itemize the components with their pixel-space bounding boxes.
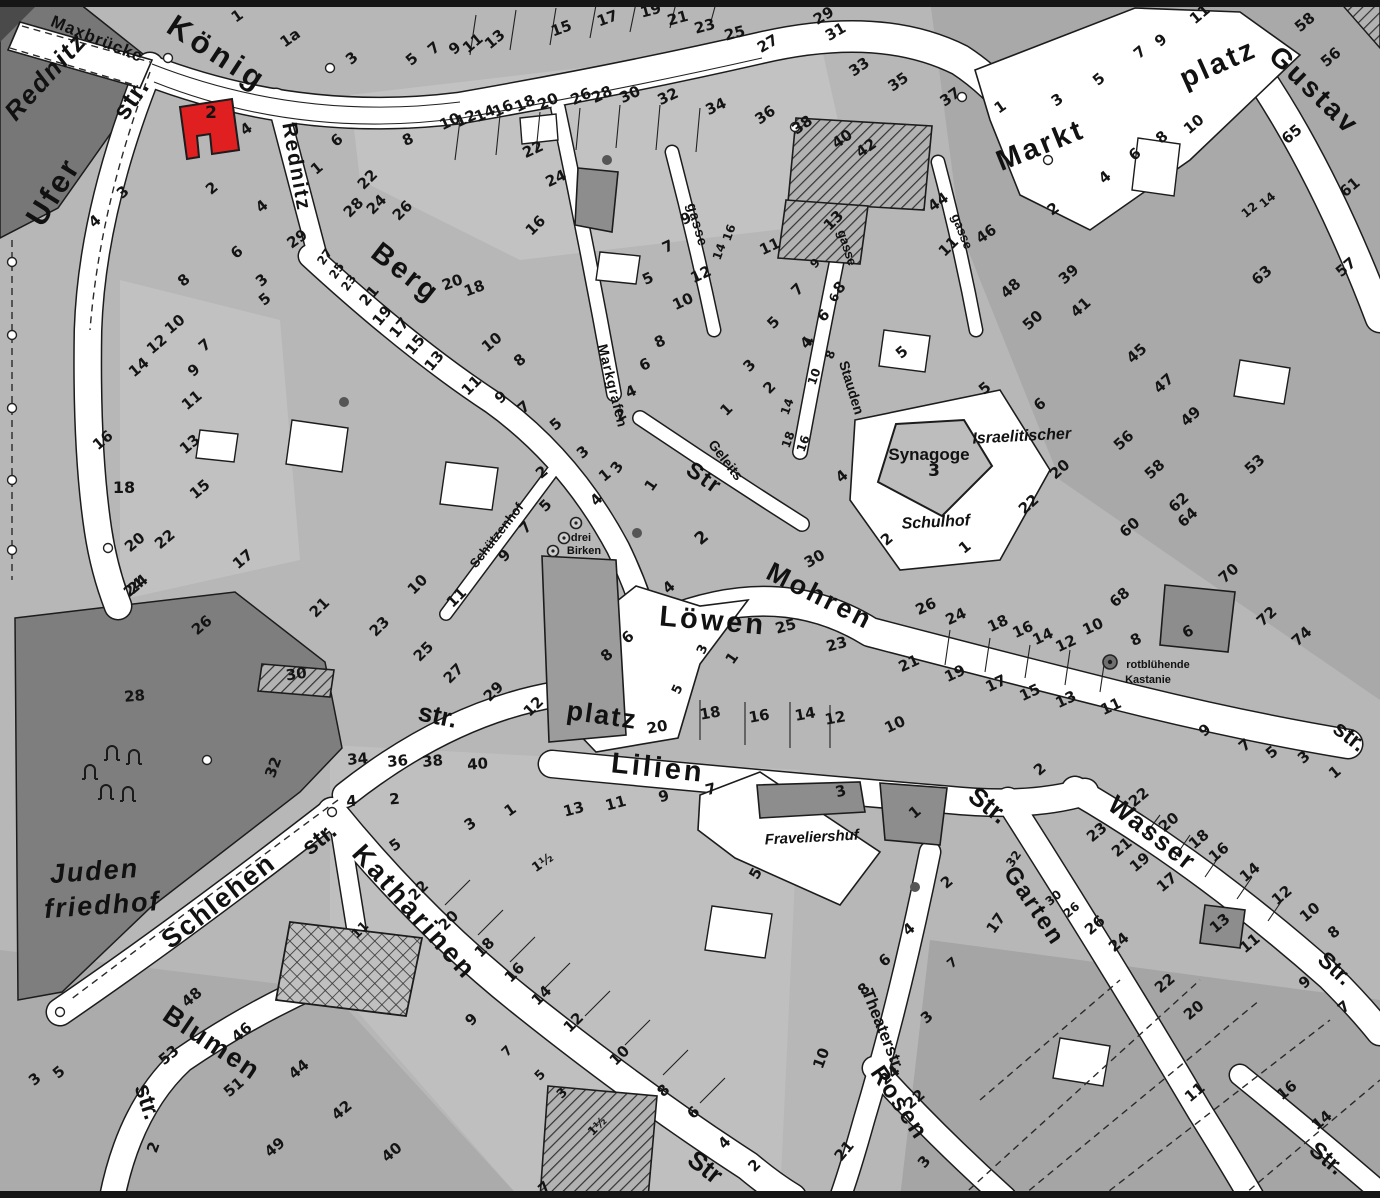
tree-icon xyxy=(571,518,582,529)
street-label: Synagoge xyxy=(888,445,969,464)
crosshatched-building xyxy=(276,922,422,1016)
house-number: 40 xyxy=(466,754,488,774)
house-number: 20 xyxy=(645,716,669,737)
house-number: 28 xyxy=(123,686,145,706)
survey-point-icon xyxy=(104,544,113,553)
tree-dot-icon xyxy=(910,882,920,892)
chestnut-tree-icon xyxy=(1103,655,1117,669)
survey-point-icon xyxy=(8,331,17,340)
survey-point-icon xyxy=(203,756,212,765)
tree-dot-icon xyxy=(602,155,612,165)
house-number: 34 xyxy=(346,749,368,769)
house-number: 18 xyxy=(698,702,722,723)
house-number: 30 xyxy=(285,664,308,685)
house-number: 12 xyxy=(823,707,847,728)
survey-point-icon xyxy=(8,404,17,413)
house-number: 36 xyxy=(386,751,408,771)
hatched-building-42 xyxy=(788,118,932,210)
hatched-building-south xyxy=(540,1086,657,1198)
street-label: drei xyxy=(571,532,591,544)
house-number: 4 xyxy=(346,792,358,811)
house-number: 16 xyxy=(747,705,771,726)
dark-building-2 xyxy=(757,782,865,818)
street-label: rotblühende xyxy=(1126,659,1190,671)
survey-point-icon xyxy=(56,1008,65,1017)
house-number: 14 xyxy=(793,703,817,724)
tree-icon xyxy=(559,533,570,544)
survey-point-icon xyxy=(164,54,173,63)
street-label: Juden xyxy=(49,853,140,889)
tree-icon xyxy=(548,546,559,557)
street-label: Kastanie xyxy=(1125,674,1171,686)
survey-point-icon xyxy=(8,258,17,267)
survey-point-icon xyxy=(328,808,337,817)
house-number: 2 xyxy=(389,790,401,809)
dark-building-1 xyxy=(575,168,618,232)
tree-dot-icon xyxy=(339,397,349,407)
tree-dot-icon xyxy=(632,528,642,538)
house-number: 3 xyxy=(928,461,940,481)
street-label: Birken xyxy=(567,545,602,557)
map-canvas: 11a3579111315171921232527293133353713579… xyxy=(0,0,1380,1198)
house-number: 18 xyxy=(113,478,135,497)
house-number: 38 xyxy=(421,751,443,771)
survey-point-icon xyxy=(8,476,17,485)
survey-point-icon xyxy=(326,64,335,73)
city-map: 11a3579111315171921232527293133353713579… xyxy=(0,0,1380,1198)
dark-building-4 xyxy=(1160,585,1235,652)
house-number: 2 xyxy=(205,103,217,123)
survey-point-icon xyxy=(8,546,17,555)
